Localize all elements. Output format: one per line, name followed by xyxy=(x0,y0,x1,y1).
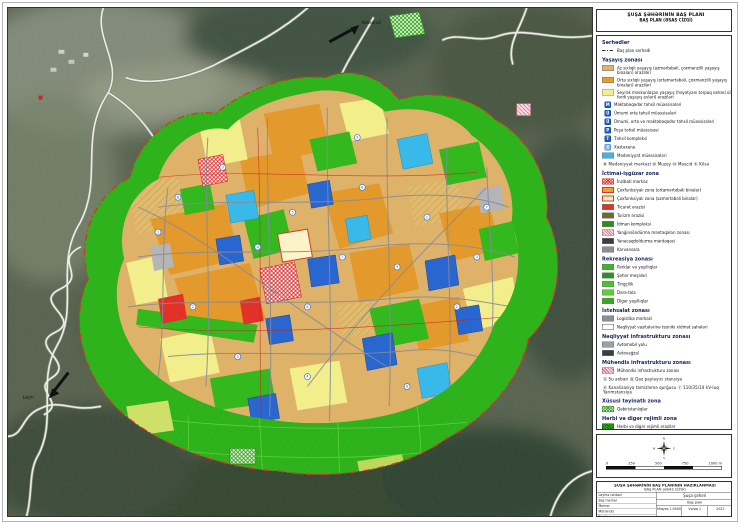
legend-item: Yanğınsöndürmə məntəqələri zonası xyxy=(602,230,732,237)
titleblock-role: Tərtibçi xyxy=(597,515,656,518)
edu-swatch-icon: Ü xyxy=(605,119,612,126)
scale-label: 1000 m xyxy=(709,462,722,466)
legend-item: Orta sıxlıqlı yaşayış (ortamərtəbəli, ço… xyxy=(602,77,732,87)
compass-scale-box: N S E W 02505007501000 m xyxy=(596,434,732,478)
titleblock-roles: Layihə rəhbəriBaş memarMemarMühəndisTərt… xyxy=(597,493,657,518)
svg-text:1: 1 xyxy=(426,215,428,219)
master-plan-map: 123456789123456789 Xankəndi Laçın xyxy=(7,7,593,517)
titleblock-project: Şuşa şəhəri xyxy=(657,493,733,500)
svg-text:4: 4 xyxy=(306,375,308,379)
legend-item: Qəbiristanlıqlar xyxy=(602,406,732,413)
green4-swatch-icon xyxy=(602,290,614,296)
titleblock-scale: Miqyas 1:5000 xyxy=(657,506,683,517)
scale-label: 0 xyxy=(606,462,608,466)
legend-item: MMəktəbəqədər təhsil müəssisələri xyxy=(602,102,732,109)
legend-item-label: Ⓚ Kanalizasiya təmizləmə qurğusu Ⓨ 110/3… xyxy=(603,385,732,395)
legend-item-label: İdman kompleksi xyxy=(617,221,651,227)
green1-swatch-icon xyxy=(602,264,614,270)
legend-item-label: Yanacaqdoldurma məntəqəsi xyxy=(617,238,675,244)
legend-item: Yanacaqdoldurma məntəqəsi xyxy=(602,238,732,245)
legend-item-label: Ümumi orta təhsil müəssisələri xyxy=(614,110,676,116)
svg-text:3: 3 xyxy=(476,255,478,259)
legend-item: Mədəniyyət müəssisələri xyxy=(602,153,732,160)
red-swatch-icon xyxy=(602,204,614,210)
dashline-swatch-icon xyxy=(602,50,614,51)
svg-text:9: 9 xyxy=(356,136,358,140)
scale-label: 250 xyxy=(628,462,635,466)
legend-item-label: Nəqliyyat vasitələrinə texniki xidmət sa… xyxy=(617,324,708,330)
pinkhatch-swatch-icon xyxy=(602,230,614,236)
legend-item-label: Avtovağzal xyxy=(617,350,639,356)
svg-text:7: 7 xyxy=(486,205,488,209)
legend-item-label: Ticarət ərazisi xyxy=(617,204,645,210)
legend-item-label: Logistika mərkəzi xyxy=(617,316,652,322)
legend-item: Nəqliyyat vasitələrinə texniki xidmət sa… xyxy=(602,324,732,331)
legend-item-label: Peşə təhsil müəssisəsi xyxy=(614,127,659,133)
pt-dark-swatch-icon xyxy=(602,350,614,356)
legend-item: Ⓜ Mədəniyyət mərkəzi Ⓜ Muzey Ⓜ Məscid Ⓚ … xyxy=(602,161,732,168)
legend-item: Dərə-tala xyxy=(602,290,732,297)
pinkhatch2-swatch-icon xyxy=(602,368,614,374)
darkgreenhatch-swatch-icon xyxy=(602,423,614,429)
compass-s: S xyxy=(663,456,665,459)
legend-item-label: Ⓜ Mədəniyyət mərkəzi Ⓜ Muzey Ⓜ Məscid Ⓚ … xyxy=(603,161,709,167)
legend-item: ÜÜmumi orta təhsil müəssisələri xyxy=(602,110,732,117)
legend-section-title: Hərbi və digər rejimli zona xyxy=(602,416,732,422)
title-box: ŞUŞA ŞƏHƏRİNİN BAŞ PLANI BAŞ PLAN (ƏSAS … xyxy=(596,9,732,32)
svg-text:5: 5 xyxy=(237,355,239,359)
legend-item-label: Baş plan sərhədi xyxy=(617,48,650,54)
svg-text:2: 2 xyxy=(456,305,458,309)
legend-item-label: Şəhər meşələri xyxy=(617,273,647,279)
scale-label: 500 xyxy=(655,462,662,466)
scale-bar-segments xyxy=(606,466,722,470)
legend-item-label: Ümumi, orta və məktəbəqədər təhsil müəss… xyxy=(614,119,714,125)
legend-item-label: Parklar və yaşıllıqlar xyxy=(617,264,657,270)
pt-dark-swatch-icon xyxy=(602,238,614,244)
compass-w: W xyxy=(653,446,656,450)
legend-item: PPeşə təhsil müəssisəsi xyxy=(602,127,732,134)
legend-section-title: Xüsusi təyinatlı zona xyxy=(602,398,732,404)
legend-item-label: Avtomobil yolu xyxy=(617,342,647,348)
legend-item: ÜÜmumi, orta və məktəbəqədər təhsil müəs… xyxy=(602,119,732,126)
legend-item: Ⓢ Su anbarı Ⓠ Qaz paylayıcı stansiya xyxy=(602,376,732,383)
svg-text:8: 8 xyxy=(361,185,363,189)
legend-item: Avtomobil yolu xyxy=(602,342,732,349)
legend-item: İdman kompleksi xyxy=(602,221,732,228)
legend-item-label: Tingçilik xyxy=(617,281,633,287)
svg-text:3: 3 xyxy=(222,166,224,170)
green3-swatch-icon xyxy=(602,281,614,287)
svg-text:5: 5 xyxy=(291,210,293,214)
legend-section-title: İstehsalat zonası xyxy=(602,308,732,314)
legend-item: Şəhər meşələri xyxy=(602,273,732,280)
legend-item-label: Turizm ərazisi xyxy=(617,213,644,219)
edu-swatch-icon: M xyxy=(605,102,612,109)
legend-item: Avtovağzal xyxy=(602,350,732,357)
legend-item: Hərbi və digər rejimli ərazilər xyxy=(602,423,732,430)
legend-item: XXəstəxana xyxy=(602,144,732,151)
legend-section-title: İctimai-işgüzar zona xyxy=(602,171,732,177)
legend-item: Az sıxlıqlı yaşayış (azmərtəbəli, çoxmən… xyxy=(602,65,732,75)
orange-swatch-icon xyxy=(602,77,614,83)
legend-item: Çoxfunksiyalı zona (ortamərtəbəli binala… xyxy=(602,187,732,194)
edu-swatch-icon: T xyxy=(605,136,612,143)
legend-item: TTəhsil kompleksi xyxy=(602,136,732,143)
yellow-swatch-icon xyxy=(602,89,614,95)
legend-item-label: Hərbi və digər rejimli ərazilər xyxy=(617,423,675,429)
white-swatch-icon xyxy=(602,324,614,330)
legend-item-label: Məktəbəqədər təhsil müəssisələri xyxy=(614,102,681,108)
legend-item: Parklar və yaşıllıqlar xyxy=(602,264,732,271)
pt-gray-swatch-icon xyxy=(602,247,614,253)
legend-box: SərhədlərBaş plan sərhədiYaşayış zonasıA… xyxy=(596,35,732,430)
redhatch-swatch-icon xyxy=(602,179,614,185)
pt-green-swatch-icon xyxy=(602,221,614,227)
svg-text:7: 7 xyxy=(341,255,343,259)
legend-item-label: Seyrək məskunlaşan yaşayış (həyətyanı to… xyxy=(617,89,732,99)
map-canvas: 123456789123456789 Xankəndi Laçın xyxy=(8,8,592,516)
legend-item: Logistika mərkəzi xyxy=(602,316,732,323)
titleblock-year: 2022 xyxy=(708,506,732,517)
compass-n: N xyxy=(663,437,665,441)
cemetery-area xyxy=(230,448,256,464)
svg-text:6: 6 xyxy=(406,385,408,389)
legend-item: Baş plan sərhədi xyxy=(602,48,732,55)
scale-label: 750 xyxy=(682,462,689,466)
graybar-swatch-icon xyxy=(602,342,614,348)
svg-text:8: 8 xyxy=(177,195,179,199)
scale-bar: 02505007501000 m xyxy=(606,462,722,470)
legend-section-title: Nəqliyyat infrastrukturu zonası xyxy=(602,334,732,340)
legend-sections: SərhədlərBaş plan sərhədiYaşayış zonasıA… xyxy=(597,36,732,430)
legend-item: Turizm ərazisi xyxy=(602,213,732,220)
title-block: ŞUŞA ŞƏHƏRİNİN BAŞ PLANININ HAZIRLANMASI… xyxy=(596,481,732,517)
legend-item: Seyrək məskunlaşan yaşayış (həyətyanı to… xyxy=(602,89,732,99)
svg-text:4: 4 xyxy=(257,245,259,249)
legend-item-label: Mədəniyyət müəssisələri xyxy=(617,153,667,159)
cyan-swatch-icon xyxy=(602,153,614,159)
titleblock-header2: BAŞ PLAN (ƏSAS CİZGİ) xyxy=(598,488,732,492)
edu-swatch-icon: Ü xyxy=(605,110,612,117)
legend-item-label: Orta sıxlıqlı yaşayış (ortamərtəbəli, ço… xyxy=(617,77,732,87)
legend-item: Digər yaşıllıqlar xyxy=(602,298,732,305)
pt-olive-swatch-icon xyxy=(602,213,614,219)
xankendi-label: Xankəndi xyxy=(361,20,381,25)
green5-swatch-icon xyxy=(602,298,614,304)
edu-swatch-icon: P xyxy=(605,127,612,134)
legend-item-label: Xəstəxana xyxy=(614,144,635,150)
titleblock-header: ŞUŞA ŞƏHƏRİNİN BAŞ PLANININ HAZIRLANMASI… xyxy=(597,482,732,493)
legend-item-label: Mühəndis infrastrukturu zonası xyxy=(617,368,679,374)
legend-item-label: Yanğınsöndürmə məntəqələri zonası xyxy=(617,230,690,236)
legend-item: Mühəndis infrastrukturu zonası xyxy=(602,368,732,375)
legend-section-title: Yaşayış zonası xyxy=(602,58,732,64)
svg-text:2: 2 xyxy=(192,305,194,309)
plan-sheet: 123456789123456789 Xankəndi Laçın ŞUŞA Ş… xyxy=(0,0,740,524)
svg-text:6: 6 xyxy=(306,305,308,309)
svg-text:1: 1 xyxy=(157,230,159,234)
green2-swatch-icon xyxy=(602,273,614,279)
titleblock-sheet: Vərəq 1 xyxy=(682,506,708,517)
legend-item-label: Təhsil kompleksi xyxy=(614,136,647,142)
legend-item-label: Çoxfunksiyalı zona (azmərtəbəli binalar) xyxy=(617,196,698,202)
legend-item-label: Çoxfunksiyalı zona (ortamərtəbəli binala… xyxy=(617,187,701,193)
compass-e: E xyxy=(673,446,675,450)
legend-item-label: Karvansara xyxy=(617,247,640,253)
orangeB-swatch-icon xyxy=(602,187,614,193)
legend-item-label: Ⓢ Su anbarı Ⓠ Qaz paylayıcı stansiya xyxy=(603,376,682,382)
legend-item: Ⓚ Kanalizasiya təmizləmə qurğusu Ⓨ 110/3… xyxy=(602,385,732,395)
page-title: ŞUŞA ŞƏHƏRİNİN BAŞ PLANI xyxy=(599,13,732,18)
legend-item: Tingçilik xyxy=(602,281,732,288)
paleB-swatch-icon xyxy=(602,196,614,202)
tan-swatch-icon xyxy=(602,65,614,71)
legend-item-label: İnzibati mərkəz xyxy=(617,179,648,185)
legend-item-label: Digər yaşıllıqlar xyxy=(617,298,648,304)
page-subtitle: BAŞ PLAN (ƏSAS CİZGİ) xyxy=(599,18,732,23)
lachin-label: Laçın xyxy=(23,394,34,399)
pt-gray-swatch-icon xyxy=(602,316,614,322)
legend-item-label: Az sıxlıqlı yaşayış (azmərtəbəli, çoxmən… xyxy=(617,65,732,75)
legend-item-label: Qəbiristanlıqlar xyxy=(617,406,648,412)
legend-item: Ticarət ərazisi xyxy=(602,204,732,211)
legend-section-title: Sərhədlər xyxy=(602,40,732,46)
legend-item: İnzibati mərkəz xyxy=(602,179,732,186)
svg-text:9: 9 xyxy=(396,265,398,269)
legend-section-title: Rekreasiya zonası xyxy=(602,257,732,263)
legend-section-title: Mühəndis infrastrukturu zonası xyxy=(602,360,732,366)
legend-item: Çoxfunksiyalı zona (azmərtəbəli binalar) xyxy=(602,196,732,203)
legend-item-label: Dərə-tala xyxy=(617,290,636,296)
greenhatch-swatch-icon xyxy=(602,406,614,412)
hospital-swatch-icon: X xyxy=(605,144,612,151)
legend-item: Karvansara xyxy=(602,247,732,254)
compass-rose: N S E W xyxy=(647,437,682,460)
